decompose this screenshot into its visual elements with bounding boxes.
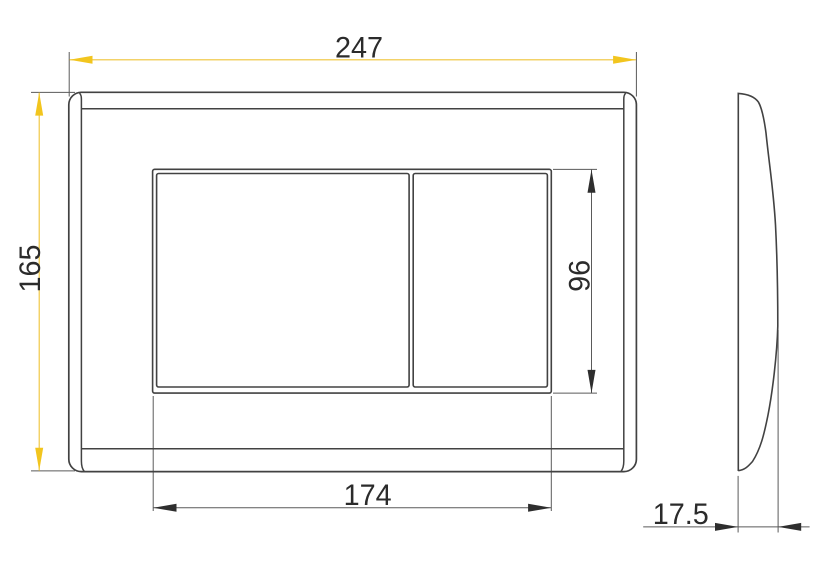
svg-text:165: 165 [13, 244, 47, 292]
svg-text:174: 174 [344, 479, 392, 513]
svg-text:17.5: 17.5 [653, 498, 709, 532]
svg-text:96: 96 [563, 260, 597, 292]
svg-text:247: 247 [335, 31, 383, 65]
